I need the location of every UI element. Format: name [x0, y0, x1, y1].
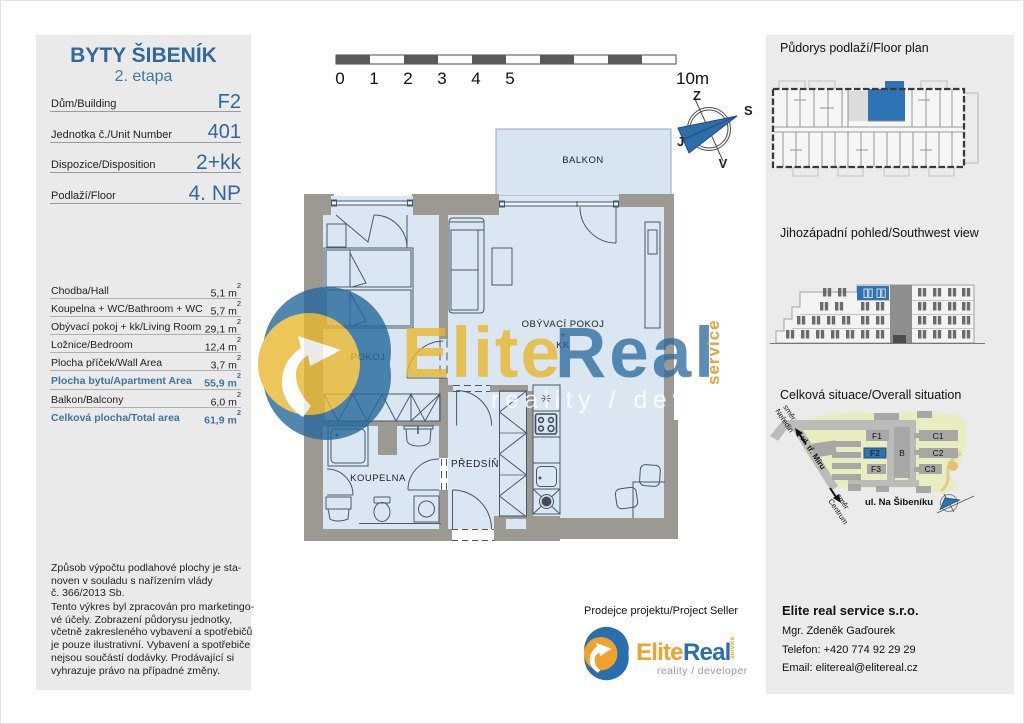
- svg-text:Real: Real: [555, 314, 717, 393]
- svg-text:ul. Na Šibeníku: ul. Na Šibeníku: [865, 496, 933, 508]
- svg-text:reality / developer: reality / developer: [657, 665, 748, 677]
- svg-text:Elite: Elite: [402, 314, 562, 393]
- svg-text:reality / dev: reality / dev: [491, 386, 690, 414]
- svg-text:C1: C1: [933, 431, 944, 441]
- svg-text:service: service: [704, 319, 723, 385]
- svg-text:Real: Real: [683, 639, 731, 666]
- svg-text:F1: F1: [872, 431, 882, 441]
- svg-text:F3: F3: [871, 464, 881, 474]
- svg-text:B: B: [899, 448, 905, 458]
- svg-text:service: service: [729, 636, 736, 659]
- svg-text:C3: C3: [925, 464, 936, 474]
- svg-text:C2: C2: [933, 448, 944, 458]
- svg-text:F2: F2: [870, 448, 880, 458]
- svg-text:Elite: Elite: [636, 639, 683, 666]
